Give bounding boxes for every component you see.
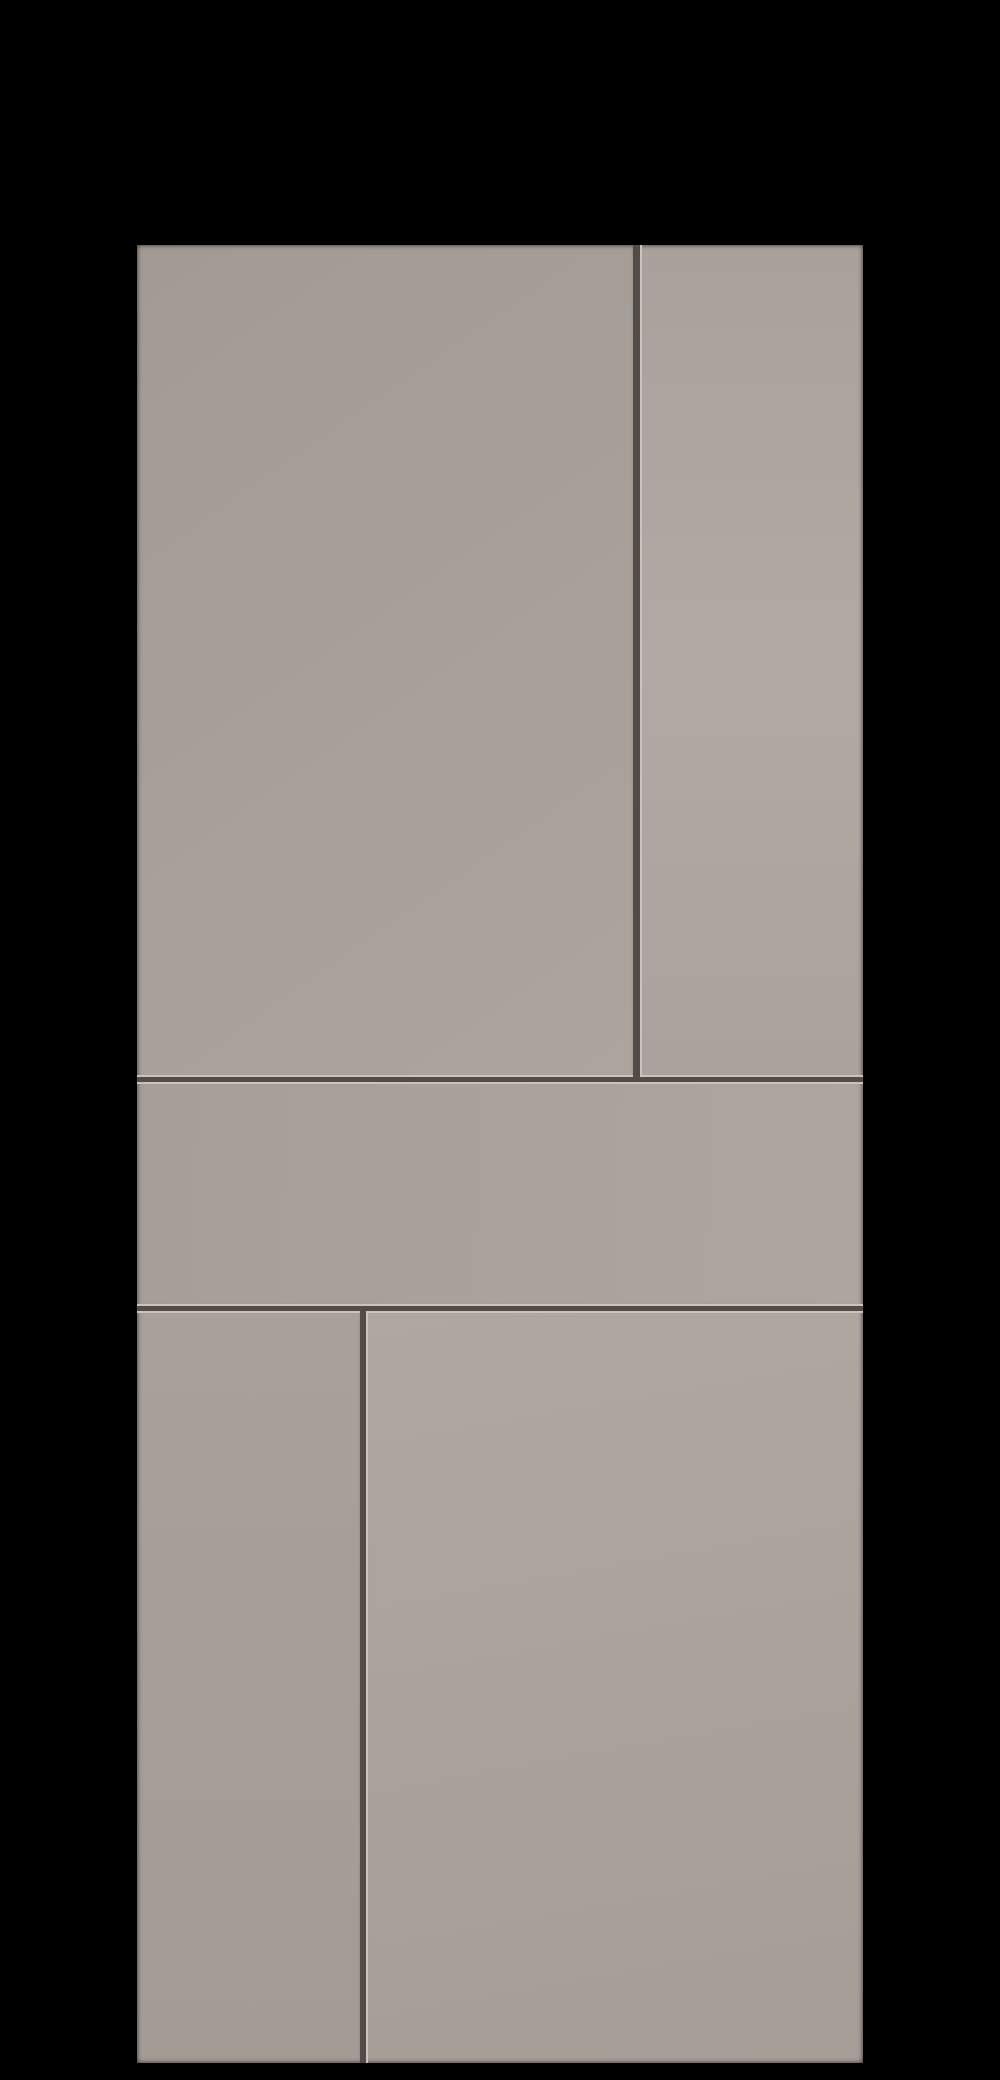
panel-assembly — [137, 245, 863, 2063]
render-canvas — [0, 0, 1000, 2080]
top-right-panel — [640, 245, 863, 1077]
bottom-left-panel — [137, 1311, 360, 2063]
bottom-right-panel — [366, 1311, 863, 2063]
top-left-panel — [137, 245, 633, 1077]
middle-rail-panel — [137, 1082, 863, 1306]
